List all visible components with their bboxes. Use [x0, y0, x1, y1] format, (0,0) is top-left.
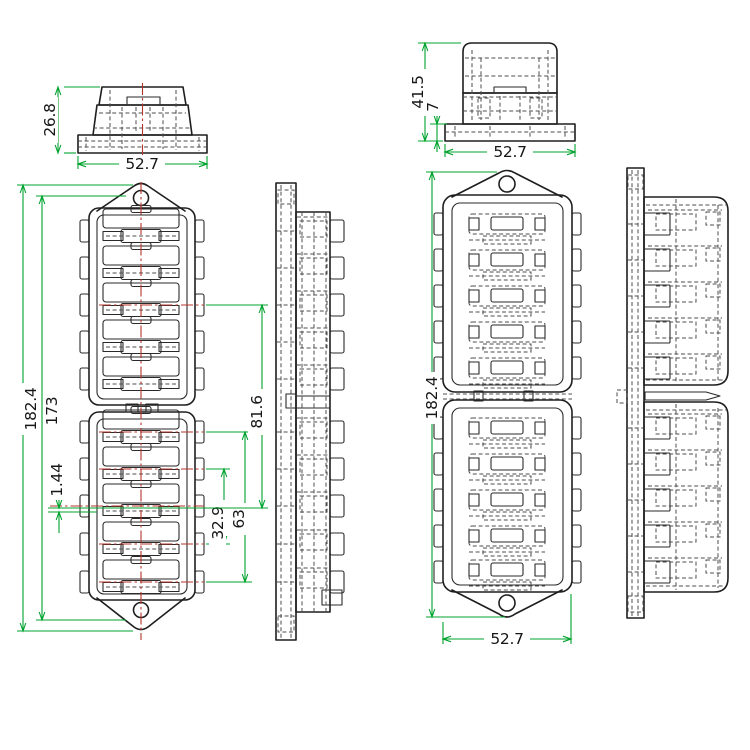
dim-label: 63	[230, 509, 248, 528]
mount-ear-top	[452, 171, 562, 198]
dim-cover-large-height: 41.5	[409, 43, 461, 141]
fuse-rows-covered	[469, 214, 545, 590]
side-tabs	[434, 213, 581, 583]
side-step	[322, 590, 342, 605]
cover-base	[445, 124, 575, 141]
dim-label: 1.44	[48, 463, 66, 496]
view-cover-small	[78, 83, 207, 158]
dim-label: 182.4	[22, 388, 40, 431]
mount-hole-top	[499, 176, 515, 192]
cover-notch	[494, 87, 526, 93]
side-hidden-lines	[277, 185, 330, 638]
dim-label: 52.7	[490, 630, 523, 648]
dim-label: 7	[424, 102, 442, 112]
dim-label: 26.8	[41, 103, 59, 136]
dim-label: 182.4	[423, 377, 441, 420]
cover-hidden-lines	[445, 50, 575, 139]
view-cover-large	[445, 43, 575, 141]
view-side-open	[276, 183, 344, 640]
dim-label: 52.7	[493, 143, 526, 161]
dim-left-inner-height: 173	[36, 196, 126, 620]
dim-label: 52.7	[125, 155, 158, 173]
dim-right-width: 52.7	[443, 594, 571, 648]
dim-left-overall-height: 182.4	[17, 185, 133, 631]
view-front-closed	[434, 171, 581, 618]
dim-cover-large-width: 52.7	[445, 143, 575, 161]
side-latch	[296, 396, 330, 408]
mount-hole-bottom	[499, 595, 515, 611]
side-strip	[627, 168, 644, 618]
body-top-half	[443, 195, 572, 392]
latch-arm	[645, 392, 720, 400]
dim-cover-small-height: 26.8	[41, 87, 100, 153]
cover-notch	[127, 97, 160, 105]
view-side-closed	[617, 168, 728, 618]
dim-label: 173	[43, 397, 61, 426]
side-teeth	[330, 220, 344, 593]
dim-cover-large-base: 7	[424, 98, 447, 152]
side-body	[296, 212, 330, 612]
side-strip	[276, 183, 296, 640]
centerlines	[50, 182, 204, 640]
cover-bottom-half	[644, 402, 728, 592]
dim-cover-small-width: 52.7	[78, 155, 207, 173]
dim-label: 81.6	[248, 395, 266, 428]
cover-mid	[463, 93, 557, 124]
mount-ear-bottom	[452, 590, 562, 617]
fuse-holder-engineering-drawing: 26.8 52.7 41.5 7	[0, 0, 750, 750]
view-front-open	[50, 182, 204, 640]
cover-dome	[463, 43, 557, 93]
dim-label: 32.9	[209, 506, 227, 539]
terminal-slots	[644, 213, 670, 583]
